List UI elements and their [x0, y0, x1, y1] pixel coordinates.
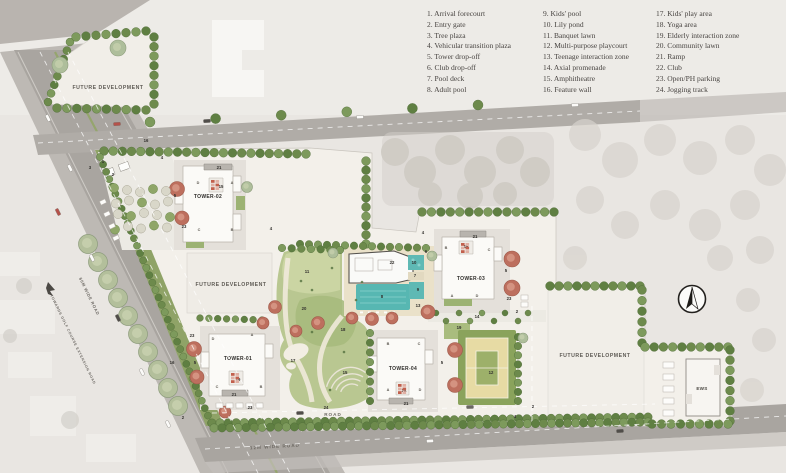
tower-03-footprint	[434, 229, 510, 313]
tower-core-grid	[461, 243, 465, 246]
playcourt	[458, 330, 516, 405]
plan-marker-16: 16	[170, 360, 175, 365]
tower-core-grid	[211, 180, 215, 183]
unit-letter-A: A	[451, 294, 454, 298]
tower-core-grid	[236, 373, 240, 376]
unit-letter-B: B	[260, 385, 263, 389]
north-arrow-icon	[679, 286, 706, 313]
tower-core-grid	[398, 388, 402, 391]
club-building	[349, 251, 413, 283]
legend-item: 8. Adult pool	[427, 85, 511, 96]
plan-marker-12: 12	[489, 370, 494, 375]
legend-item: 11. Banquet lawn	[543, 31, 629, 42]
tower-core-grid	[231, 380, 235, 383]
tower-core-grid	[403, 384, 407, 387]
tower-core-grid	[403, 388, 407, 391]
plan-marker-21: 21	[473, 234, 478, 239]
tower-02-footprint	[174, 160, 246, 250]
tower-core-grid	[236, 380, 240, 383]
legend-item: 23. Open/PH parking	[656, 74, 739, 85]
plan-marker-24: 24	[324, 405, 329, 410]
plan-marker-11: 11	[305, 269, 310, 274]
tower-01-label: TOWER-01	[224, 356, 252, 362]
unit-letter-C: C	[418, 342, 421, 346]
legend-item: 19. Elderly interaction zone	[656, 31, 739, 42]
plan-marker-10: 10	[412, 260, 417, 265]
legend-item: 13. Teenage interaction zone	[543, 52, 629, 63]
unit-letter-D: D	[476, 294, 479, 298]
legend-column-1: 1. Arrival forecourt 2. Entry gate 3. Tr…	[427, 9, 511, 95]
plan-marker-15: 15	[343, 370, 348, 375]
plan-marker-21: 21	[232, 392, 237, 397]
legend-item: 18. Yoga area	[656, 20, 739, 31]
unit-letter-C: C	[198, 228, 201, 232]
legend-item: 17. Kids' play area	[656, 9, 739, 20]
future-dev-label-east: FUTURE DEVELOPMENT	[560, 353, 631, 359]
unit-letter-B: B	[231, 228, 234, 232]
unit-letter-C: C	[216, 385, 219, 389]
tower-core-grid	[461, 247, 465, 250]
legend-item: 12. Multi-purpose playcourt	[543, 41, 629, 52]
future-dev-label-mid: FUTURE DEVELOPMENT	[196, 282, 267, 288]
plan-marker-23: 23	[507, 296, 512, 301]
tower-core-grid	[216, 180, 220, 183]
legend-item: 9. Kids' pool	[543, 9, 629, 20]
tower-core-grid	[398, 384, 402, 387]
tower-core-grid	[216, 187, 220, 190]
plan-marker-17: 17	[291, 358, 296, 363]
tower-core-grid	[236, 377, 240, 380]
legend-item: 3. Tree plaza	[427, 31, 511, 42]
tower-03-label: TOWER-03	[457, 276, 485, 282]
tower-core-grid	[466, 243, 470, 246]
tower-core-grid	[211, 187, 215, 190]
ramp-04	[389, 398, 413, 404]
legend-item: 15. Amphitheatre	[543, 74, 629, 85]
tower-core-grid	[231, 377, 235, 380]
tower-core-grid	[403, 391, 407, 394]
plan-marker-21: 21	[217, 165, 222, 170]
plan-marker-21: 21	[404, 401, 409, 406]
plan-marker-13: 13	[416, 303, 421, 308]
unit-letter-C: C	[488, 248, 491, 252]
legend-item: 7. Pool deck	[427, 74, 511, 85]
tower-core-grid	[398, 391, 402, 394]
legend-column-2: 9. Kids' pool 10. Lily pond 11. Banquet …	[543, 9, 629, 95]
tower-core-grid	[216, 184, 220, 187]
road-label: ROAD	[324, 412, 342, 417]
plan-marker-14: 14	[475, 314, 480, 319]
legend-column-3: 17. Kids' play area 18. Yoga area 19. El…	[656, 9, 739, 95]
ews-label: EWS	[696, 386, 707, 391]
tower-02-label: TOWER-02	[194, 194, 222, 200]
legend-item: 22. Club	[656, 63, 739, 74]
legend-item: 20. Community lawn	[656, 41, 739, 52]
future-dev-label-nw: FUTURE DEVELOPMENT	[73, 85, 144, 91]
plan-marker-20: 20	[302, 306, 307, 311]
tower-core-grid	[211, 184, 215, 187]
club-pool-complex	[344, 246, 434, 316]
plan-marker-16: 16	[144, 138, 149, 143]
tower-core-grid	[466, 250, 470, 253]
unit-letter-D: D	[212, 337, 215, 341]
legend-item: 21. Ramp	[656, 52, 739, 63]
plan-marker-23: 23	[190, 333, 195, 338]
unit-letter-A: A	[231, 181, 234, 185]
legend-item: 1. Arrival forecourt	[427, 9, 511, 20]
legend-item: 14. Axial promenade	[543, 63, 629, 74]
unit-letter-B: B	[445, 246, 448, 250]
legend-item: 4. Vehicular transition plaza	[427, 41, 511, 52]
tower-core-grid	[231, 373, 235, 376]
unit-letter-B: B	[387, 342, 390, 346]
plan-marker-15: 15	[219, 184, 224, 189]
legend-item: 6. Club drop-off	[427, 63, 511, 74]
tower-core-grid	[461, 250, 465, 253]
unit-letter-A: A	[251, 333, 254, 337]
unit-letter-A: A	[387, 388, 390, 392]
legend-item: 5. Tower drop-off	[427, 52, 511, 63]
plan-marker-23: 23	[182, 224, 187, 229]
legend-item: 10. Lily pond	[543, 20, 629, 31]
plan-marker-23: 23	[248, 405, 253, 410]
plan-marker-18: 18	[341, 327, 346, 332]
legend-item: 24. Jogging track	[656, 85, 739, 96]
site-plan-page: FUTURE DEVELOPMENT FUTURE DEVELOPMENT FU…	[0, 0, 786, 473]
unit-letter-D: D	[197, 181, 200, 185]
unit-letter-D: D	[419, 388, 422, 392]
legend-item: 2. Entry gate	[427, 20, 511, 31]
legend-item: 16. Feature wall	[543, 85, 629, 96]
plan-marker-19: 19	[457, 325, 462, 330]
plan-marker-22: 22	[390, 260, 395, 265]
tower-04-label: TOWER-04	[389, 366, 417, 372]
tower-core-grid	[466, 247, 470, 250]
existing-trees-context	[381, 132, 554, 209]
